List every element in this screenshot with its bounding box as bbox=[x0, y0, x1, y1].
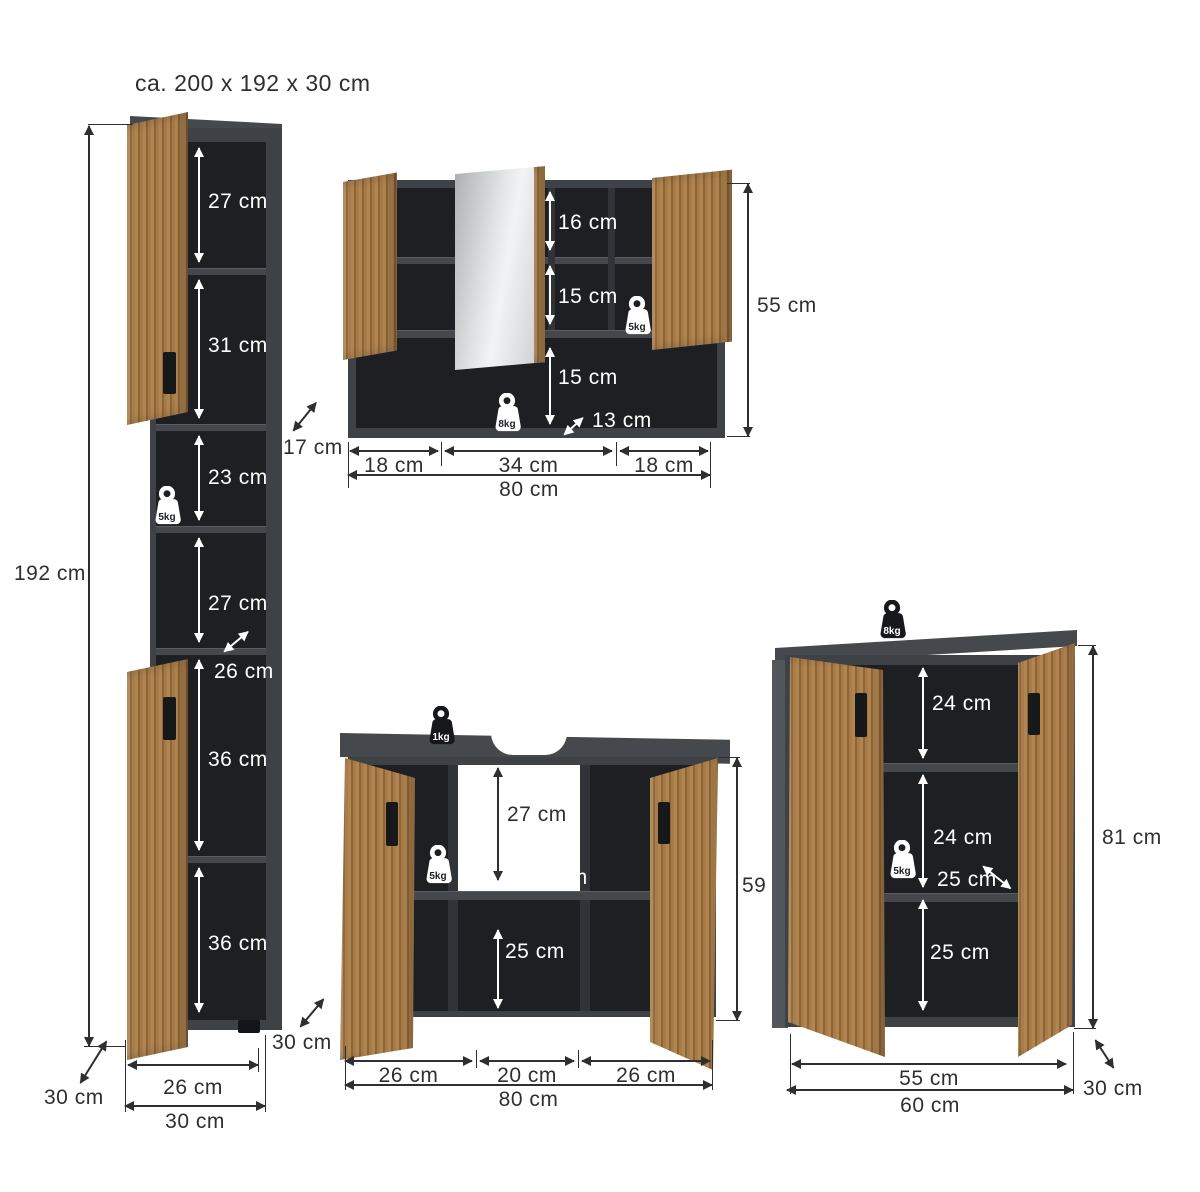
dim-label: 24 cm bbox=[932, 692, 992, 716]
dim-arrow bbox=[300, 999, 325, 1028]
dim-label: 25 cm bbox=[505, 940, 565, 964]
dim-arrow bbox=[293, 402, 317, 431]
guide-line bbox=[710, 442, 711, 488]
dim-label: 15 cm bbox=[558, 285, 618, 309]
dim-label: 30 cm bbox=[272, 1031, 332, 1055]
dimension-diagram: ca. 200 x 192 x 30 cm 27 cm 31 cm 23 cm … bbox=[0, 0, 1200, 1192]
dim-label: 16 cm bbox=[558, 211, 618, 235]
dim-arrow bbox=[345, 1084, 712, 1086]
tall-cabinet-upper-door bbox=[127, 112, 188, 425]
load-1kg-icon: 1kg bbox=[424, 706, 458, 746]
dim-label: 24 cm bbox=[933, 826, 993, 850]
side-cabinet-left-door-handle bbox=[855, 693, 867, 737]
dim-arrow bbox=[1092, 646, 1094, 1028]
load-5kg-icon: 5kg bbox=[620, 296, 654, 336]
dim-arrow bbox=[736, 758, 738, 1020]
svg-text:5kg: 5kg bbox=[628, 322, 645, 333]
guide-line bbox=[578, 1050, 579, 1068]
svg-text:5kg: 5kg bbox=[893, 866, 910, 877]
guide-line bbox=[616, 442, 617, 466]
dim-arrow bbox=[792, 1063, 1066, 1065]
dim-arrow bbox=[128, 1064, 258, 1066]
dim-label: 192 cm bbox=[14, 562, 86, 586]
load-5kg-icon: 5kg bbox=[150, 486, 184, 526]
guide-line bbox=[441, 442, 442, 466]
dim-arrow bbox=[549, 266, 551, 324]
dim-arrow bbox=[497, 768, 499, 880]
tall-cabinet-upper-door-handle bbox=[163, 352, 176, 394]
tall-cabinet-shelf bbox=[156, 526, 266, 533]
dim-arrow bbox=[922, 775, 924, 887]
dim-arrow bbox=[1095, 1040, 1115, 1069]
dim-label: 17 cm bbox=[283, 436, 343, 460]
dim-arrow bbox=[497, 930, 499, 1008]
load-8kg-icon: 8kg bbox=[490, 393, 524, 433]
dim-arrow bbox=[198, 148, 200, 262]
tall-cabinet-lower-door-handle bbox=[163, 697, 176, 740]
dim-arrow bbox=[445, 450, 612, 452]
dim-label: 25 cm bbox=[930, 941, 990, 965]
dim-arrow bbox=[350, 450, 438, 452]
dim-label: 15 cm bbox=[558, 366, 618, 390]
svg-text:8kg: 8kg bbox=[498, 419, 515, 430]
dim-arrow bbox=[198, 868, 200, 1012]
svg-text:5kg: 5kg bbox=[429, 871, 446, 882]
dim-label: 60 cm bbox=[787, 1094, 1073, 1118]
dim-label: 55 cm bbox=[757, 294, 817, 318]
dim-arrow bbox=[125, 1105, 265, 1107]
tick bbox=[88, 124, 133, 125]
dim-arrow bbox=[480, 1060, 574, 1062]
mirror-cabinet-left-door bbox=[343, 172, 397, 360]
dim-arrow bbox=[549, 192, 551, 250]
tall-cabinet-foot bbox=[238, 1020, 260, 1033]
svg-text:1kg: 1kg bbox=[432, 732, 449, 743]
dim-label: 30 cm bbox=[1083, 1077, 1143, 1101]
dim-label: 26 cm bbox=[128, 1076, 258, 1100]
mirror-cabinet-right-door bbox=[652, 170, 732, 350]
dim-arrow bbox=[747, 184, 749, 436]
dim-arrow bbox=[549, 348, 551, 424]
dim-label: 30 cm bbox=[44, 1086, 104, 1110]
side-cabinet-right-door-handle bbox=[1028, 693, 1040, 735]
svg-text:5kg: 5kg bbox=[158, 512, 175, 523]
dim-label: 80 cm bbox=[348, 478, 710, 502]
dim-label: 13 cm bbox=[592, 409, 652, 433]
mirror-door bbox=[455, 166, 545, 370]
dim-label: 36 cm bbox=[208, 932, 268, 956]
dim-arrow bbox=[787, 1089, 1073, 1091]
dim-arrow bbox=[198, 538, 200, 642]
tall-cabinet-shelf bbox=[156, 424, 266, 431]
mirror-door-edge bbox=[534, 166, 545, 363]
sink-cabinet-left-door-handle bbox=[386, 802, 398, 846]
sink-cabinet-divider bbox=[448, 765, 458, 1011]
guide-line bbox=[476, 1050, 477, 1068]
dim-arrow bbox=[582, 1060, 710, 1062]
dim-label: 27 cm bbox=[208, 592, 268, 616]
dim-arrow bbox=[198, 436, 200, 520]
load-5kg-icon: 5kg bbox=[421, 845, 455, 885]
dim-arrow bbox=[922, 900, 924, 1010]
dim-arrow bbox=[80, 1041, 108, 1084]
dim-arrow bbox=[345, 1060, 472, 1062]
dim-arrow bbox=[348, 474, 710, 476]
page-title: ca. 200 x 192 x 30 cm bbox=[135, 70, 371, 97]
sink-cabinet-left-door bbox=[340, 755, 415, 1060]
side-cabinet-right-door bbox=[1016, 643, 1076, 1057]
dim-arrow bbox=[922, 668, 924, 758]
dim-label: 25 cm bbox=[937, 868, 997, 892]
dim-label: 55 cm bbox=[792, 1067, 1066, 1091]
dim-arrow bbox=[198, 660, 200, 850]
side-cabinet-left-door bbox=[788, 657, 885, 1057]
tall-cabinet-lower-door bbox=[127, 659, 188, 1060]
dim-label: 36 cm bbox=[208, 748, 268, 772]
load-8kg-icon: 8kg bbox=[875, 600, 909, 640]
dim-label: 81 cm bbox=[1102, 826, 1162, 850]
tall-cabinet-shelf bbox=[156, 648, 266, 655]
dim-arrow bbox=[198, 280, 200, 418]
dim-label: 26 cm bbox=[214, 660, 274, 684]
dim-label: 30 cm bbox=[125, 1110, 265, 1134]
dim-arrow bbox=[88, 126, 90, 1046]
sink-cabinet-right-door-handle bbox=[658, 802, 670, 844]
dim-label: 23 cm bbox=[208, 466, 268, 490]
dim-label: 27 cm bbox=[208, 190, 268, 214]
dim-label: 80 cm bbox=[345, 1088, 712, 1112]
dim-label: 31 cm bbox=[208, 334, 268, 358]
svg-text:8kg: 8kg bbox=[883, 626, 900, 637]
load-5kg-icon: 5kg bbox=[885, 840, 919, 880]
dim-arrow bbox=[620, 450, 708, 452]
dim-label: 25 cm bbox=[528, 866, 588, 890]
dim-label: 27 cm bbox=[507, 803, 567, 827]
sink-cutout bbox=[491, 733, 567, 755]
